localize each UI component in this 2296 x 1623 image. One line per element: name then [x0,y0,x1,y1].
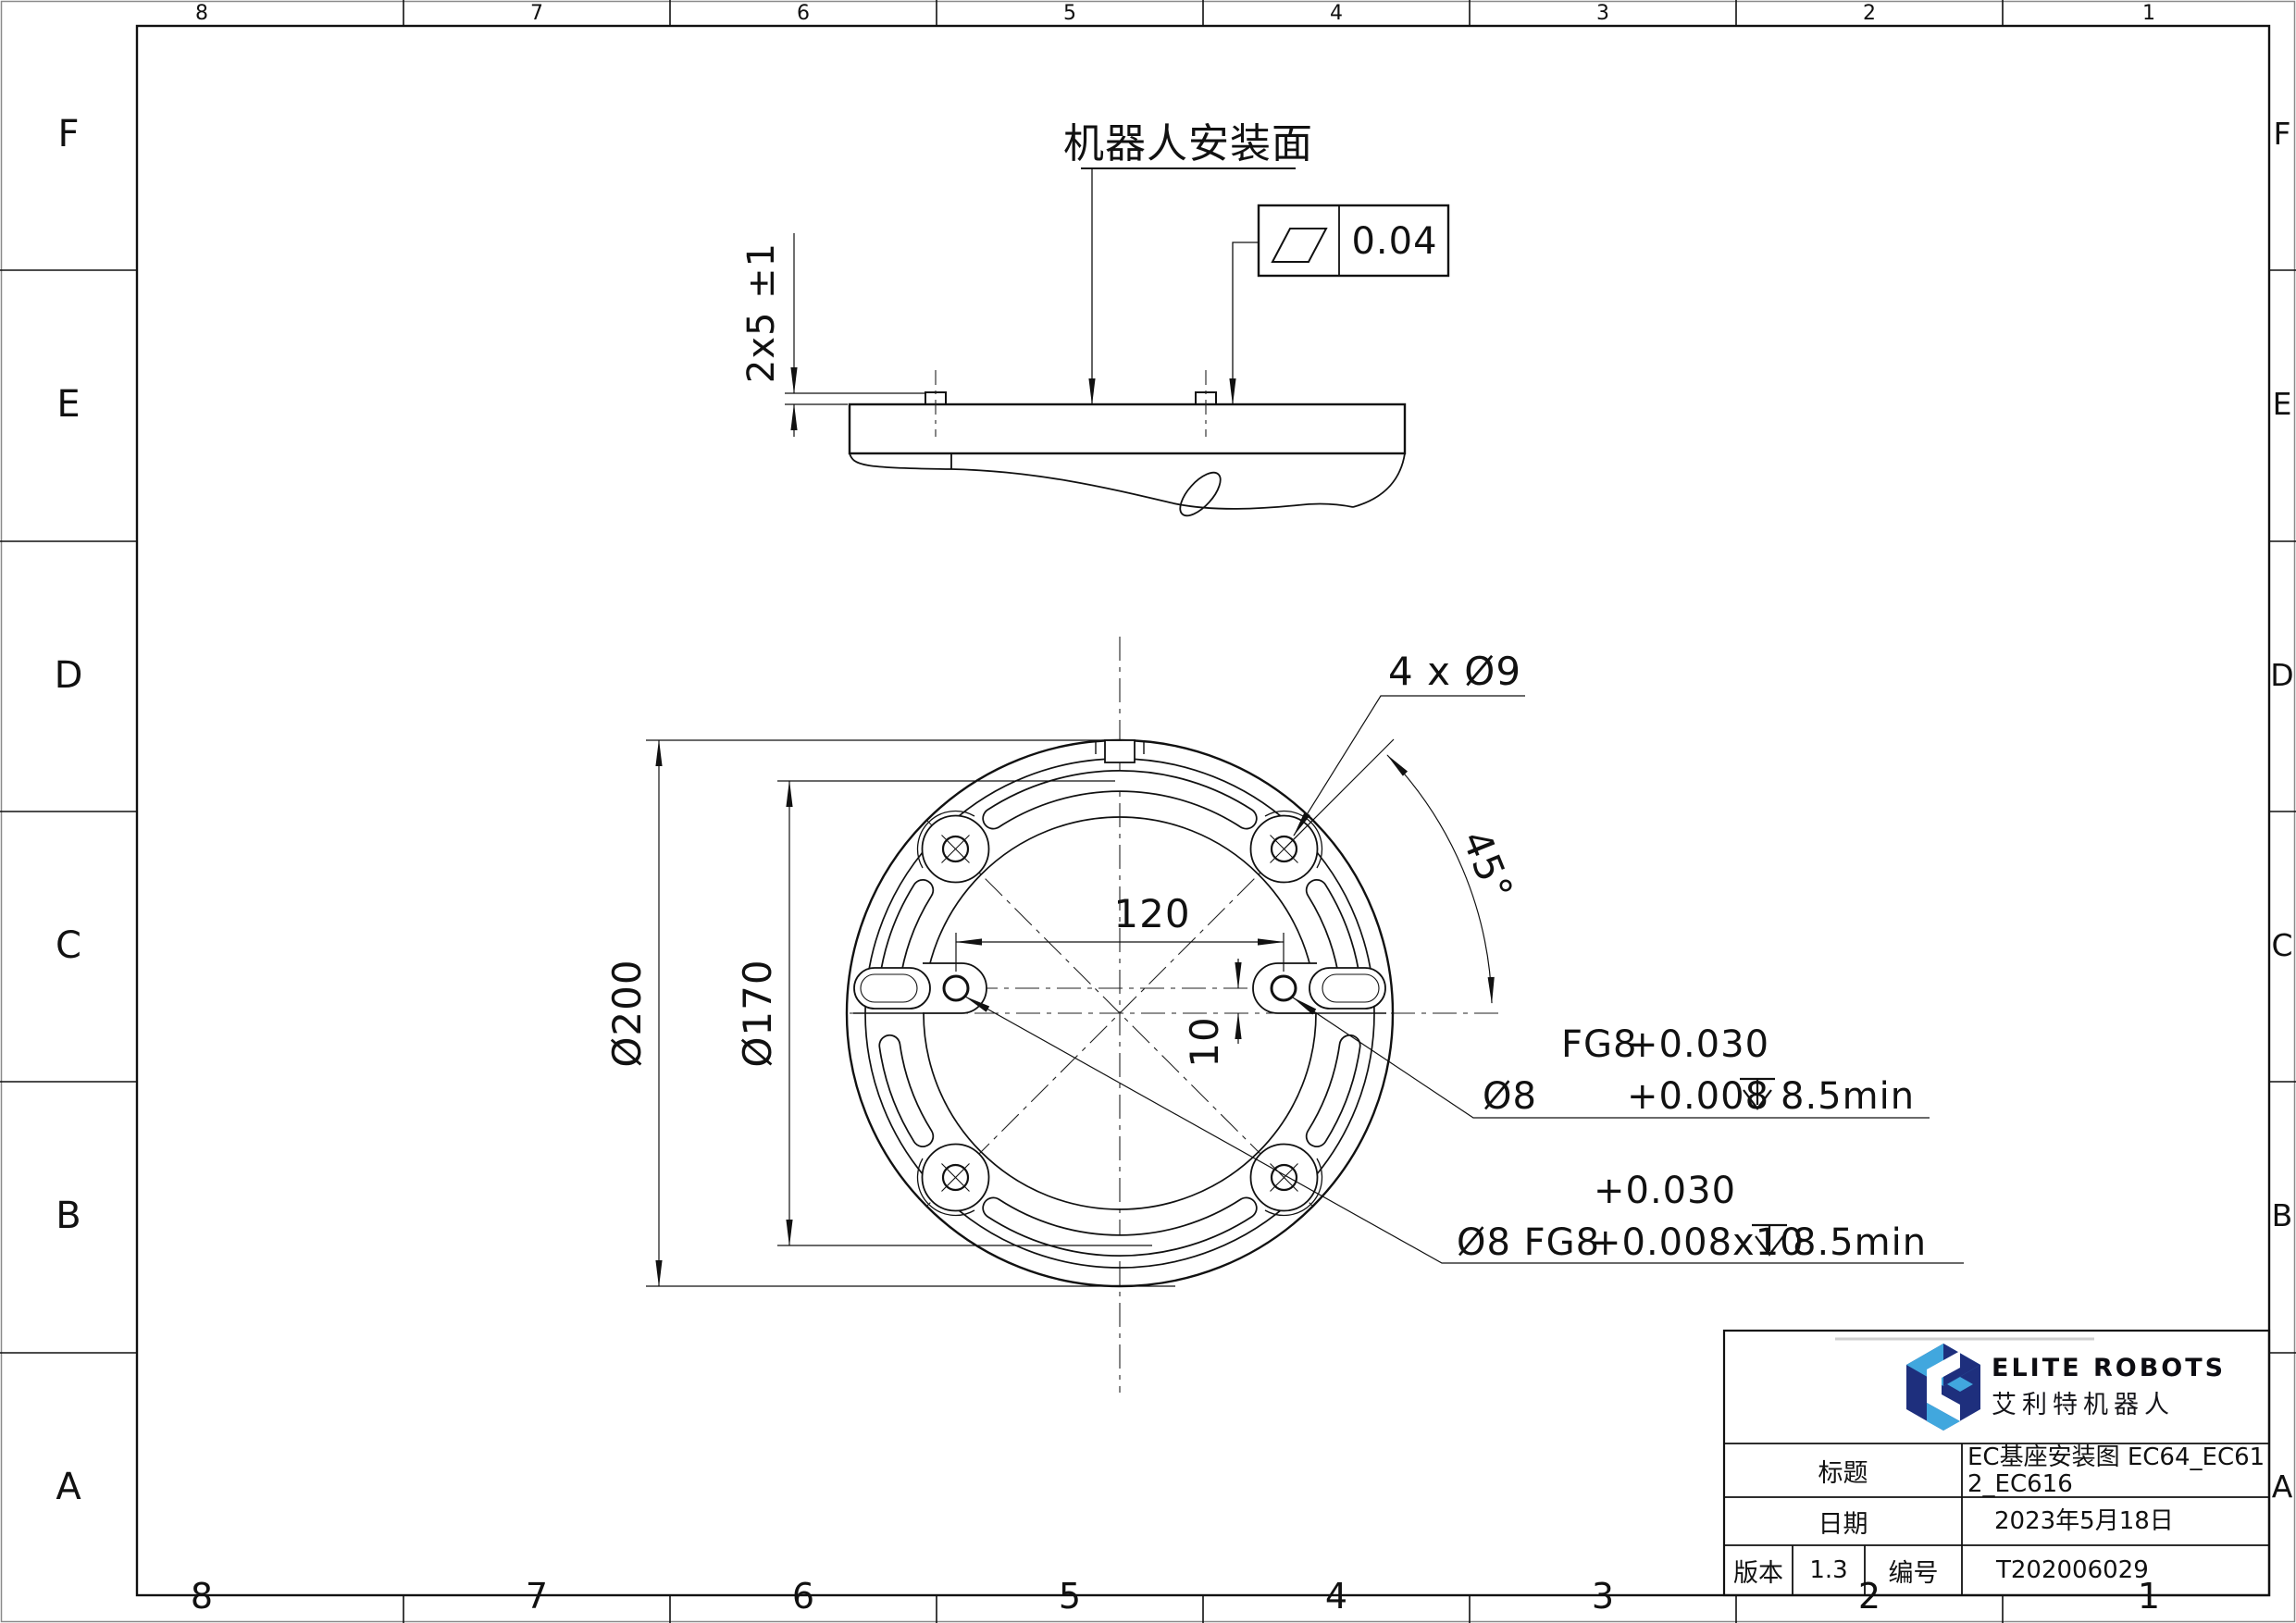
callout1-tol-upper: +0.030 [1627,1023,1769,1066]
pin-offset-dim-text: 10 [1182,1016,1227,1067]
row-right-c: C [2271,927,2292,963]
callout2-dia: Ø8 FG8 [1457,1221,1600,1264]
zone-top-8: 8 [195,2,208,25]
callout2-tol-upper: +0.030 [1594,1170,1736,1212]
callout1-dia: Ø8 [1483,1075,1537,1118]
zone-top-7: 7 [530,2,543,25]
pin-height-dim-text: 2x5 ±1 [740,242,783,383]
row-right-a: A [2272,1468,2293,1505]
zone-top-5: 5 [1063,2,1076,25]
elite-robots-logo-icon [1906,1344,1980,1431]
outer-dia-dim-text: Ø200 [604,959,650,1067]
row-labels-left: F E D C B A [55,113,83,1508]
drawing-canvas: 8 7 6 5 4 3 2 1 8 7 6 5 4 3 2 1 F E D C … [0,0,2296,1623]
zone-top-6: 6 [797,2,810,25]
number-label: 编号 [1865,1545,1962,1595]
dowel-hole-left [944,976,968,1000]
row-left-d: D [55,654,83,697]
front-view: Ø200 Ø170 120 10 45° 4 x Ø9 FG8 +0.030 Ø… [604,637,1964,1393]
row-right-b: B [2272,1197,2293,1233]
zone-top-2: 2 [1863,2,1876,25]
callout2-depth: 8.5min [1793,1221,1927,1264]
hole-callout-text: 4 x Ø9 [1388,649,1521,694]
flatness-symbol-icon [1272,229,1326,262]
row-left-e: E [56,383,80,426]
row-right-d: D [2270,657,2293,693]
drawing-sheet: 8 7 6 5 4 3 2 1 8 7 6 5 4 3 2 1 F E D C … [0,0,2296,1623]
row-right-e: E [2273,386,2292,422]
zone-bottom-7: 7 [526,1576,548,1617]
pin-height-dimension [785,233,925,437]
row-left-f: F [57,113,79,155]
row-left-c: C [56,924,81,967]
zone-bottom-4: 4 [1325,1576,1347,1617]
title-label: 标题 [1724,1443,1962,1497]
surface-title-text: 机器人安装面 [1063,120,1313,167]
row-left-b: B [56,1195,81,1237]
base-skirt-profile [850,453,1405,522]
dowel-hole-right [1272,976,1296,1000]
angle-dim-text: 45° [1453,824,1521,907]
number-value: T202006029 [1996,1545,2265,1595]
cable-hole-detail [1173,466,1227,522]
zone-top-1: 1 [2142,2,2155,25]
brand-name-cn: 艾利特机器人 [1992,1386,2269,1418]
side-view: 机器人安装面 0.04 2x5 ±1 [740,120,1448,522]
row-left-a: A [56,1466,81,1508]
base-plate-section [850,404,1405,453]
date-value: 2023年5月18日 [1994,1497,2263,1545]
pin-callout-1: FG8 +0.030 Ø8 +0.008 8.5min [1483,1023,1915,1118]
flatness-value: 0.04 [1351,220,1437,263]
title-value: EC基座安装图 EC64_EC612_EC616 [1967,1445,2265,1497]
centerlines [850,637,1501,1393]
zone-top-4: 4 [1330,2,1343,25]
version-value: 1.3 [1793,1545,1865,1595]
pin-callout-2: +0.030 Ø8 FG8 +0.008x10 8.5min [1457,1170,1927,1264]
row-labels-right: F E D C B A [2270,116,2293,1505]
zone-labels-top: 8 7 6 5 4 3 2 1 [195,2,2155,25]
callout1-depth: 8.5min [1781,1075,1915,1118]
brand-name-en: ELITE ROBOTS [1992,1353,2269,1382]
date-label: 日期 [1724,1497,1962,1545]
callout2-tol-lower: +0.008x10 [1590,1221,1805,1264]
zone-bottom-3: 3 [1592,1576,1614,1617]
pin-spacing-dim-text: 120 [1113,891,1190,936]
zone-top-3: 3 [1596,2,1609,25]
zone-bottom-6: 6 [792,1576,814,1617]
flatness-tolerance-frame: 0.04 [1233,205,1448,404]
row-right-f: F [2274,116,2291,152]
zone-bottom-8: 8 [191,1576,213,1617]
bolt-circle-dia-dim-text: Ø170 [735,959,780,1067]
version-label: 版本 [1724,1545,1793,1595]
zone-bottom-5: 5 [1059,1576,1081,1617]
